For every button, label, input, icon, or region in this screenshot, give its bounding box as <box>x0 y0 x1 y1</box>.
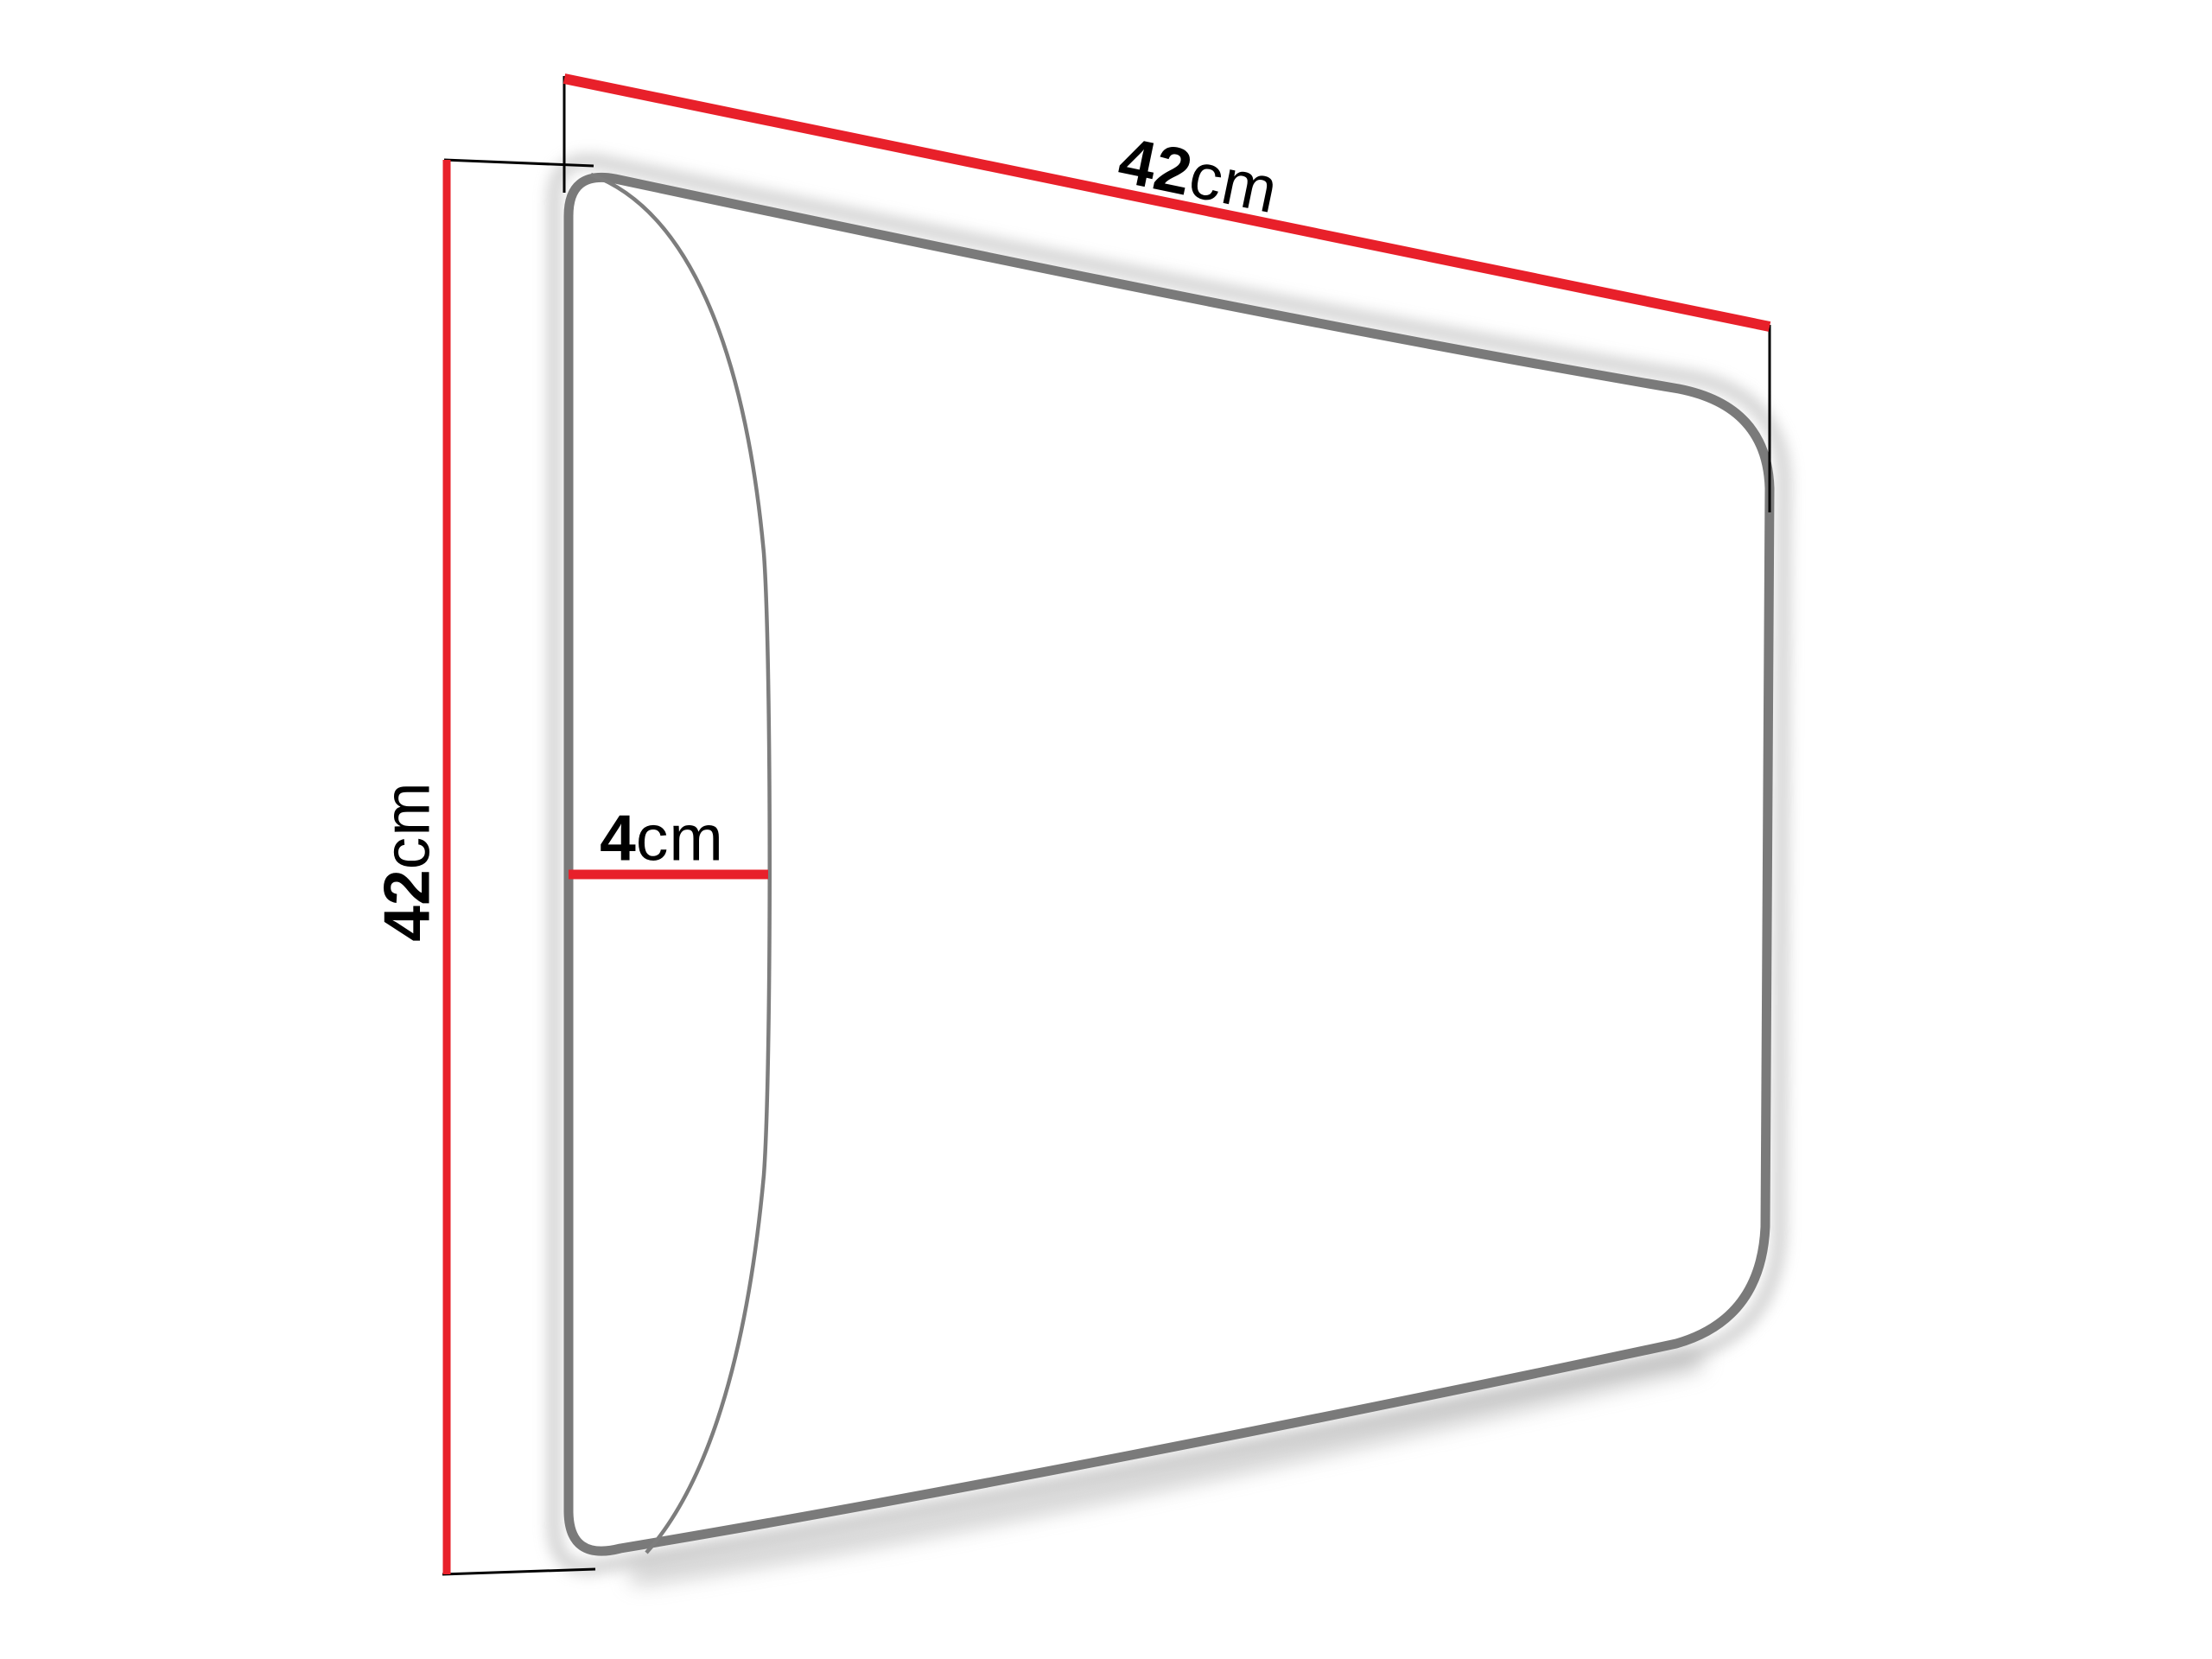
diagram-artwork <box>0 0 2212 1659</box>
height-unit: cm <box>371 781 443 869</box>
panel-outline <box>569 177 1770 1551</box>
depth-dimension-label: 4cm <box>600 806 724 871</box>
depth-value: 4 <box>600 802 636 874</box>
depth-unit: cm <box>636 802 724 874</box>
height-value: 42 <box>371 869 443 941</box>
extension-line-bottom-left-horizontal <box>442 1569 595 1574</box>
height-dimension-label: 42cm <box>375 781 440 941</box>
panel-dimension-diagram: 42cm 42cm 4cm <box>0 0 2212 1659</box>
